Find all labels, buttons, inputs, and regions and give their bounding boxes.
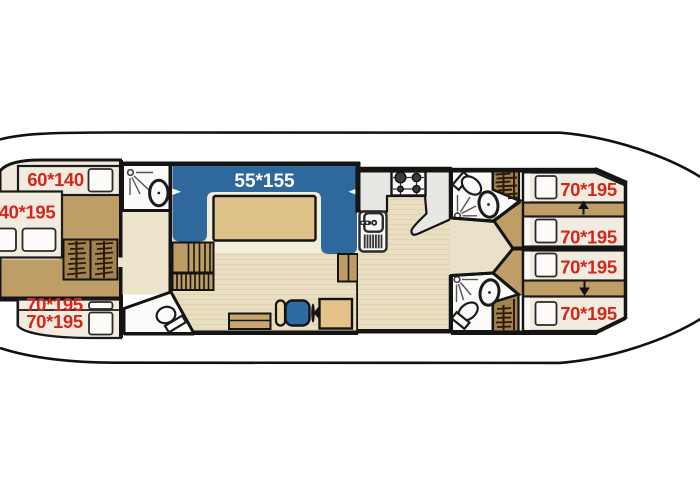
svg-text:55*155: 55*155 <box>234 171 295 192</box>
svg-text:70*195: 70*195 <box>560 257 617 278</box>
svg-text:60*140: 60*140 <box>27 169 84 190</box>
svg-text:40*195: 40*195 <box>0 202 55 223</box>
svg-text:70*195: 70*195 <box>26 311 83 332</box>
svg-text:70*195: 70*195 <box>560 179 617 200</box>
svg-text:70*195: 70*195 <box>560 303 617 324</box>
svg-text:70*195: 70*195 <box>560 227 617 248</box>
